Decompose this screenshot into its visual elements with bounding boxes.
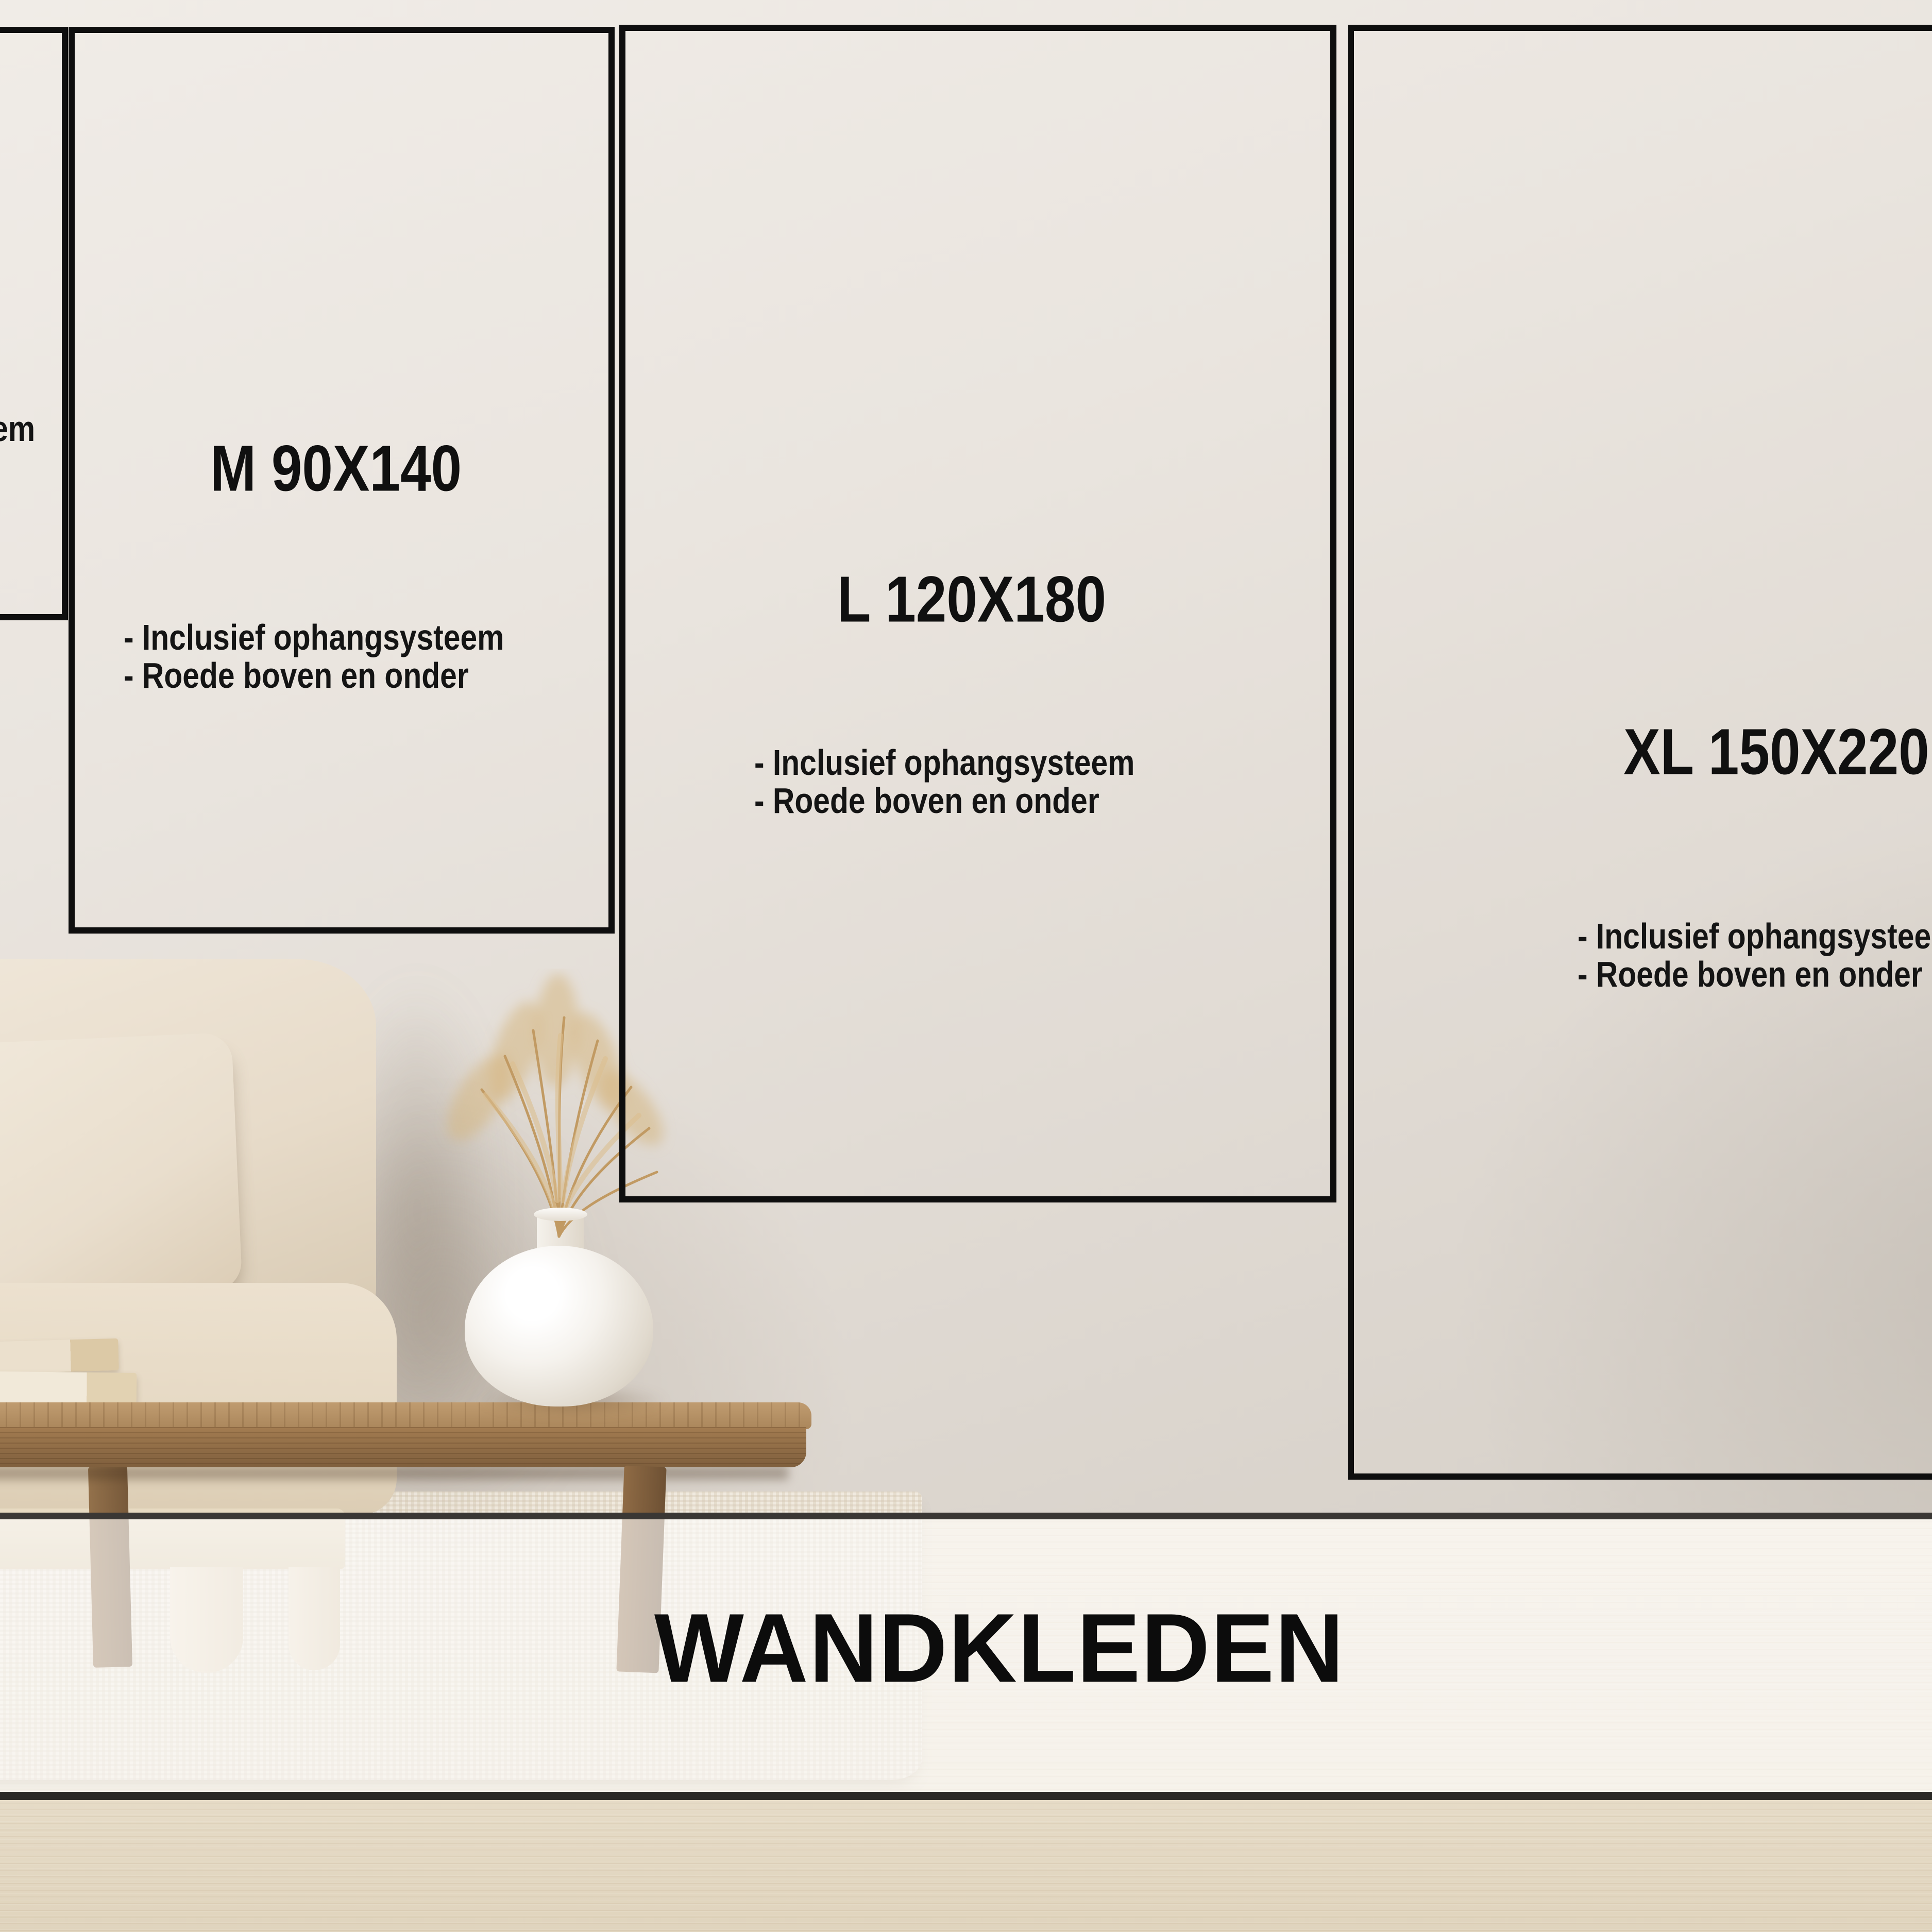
size-l-bullet-2: - Roede boven en onder: [754, 782, 1134, 820]
sofa-pillow: [0, 1032, 243, 1302]
book: [0, 1338, 119, 1375]
size-s-bullet-fragment: em: [0, 408, 35, 449]
banner-title: WANDKLEDEN: [654, 1592, 1345, 1704]
table-shadow: [0, 1466, 788, 1480]
size-xl-label: XL 150X220: [1623, 715, 1929, 789]
coffee-table-edge: [0, 1427, 806, 1467]
vase-lip: [534, 1208, 587, 1221]
size-m-bullet-1: - Inclusief ophangsysteem: [124, 618, 504, 656]
book: [0, 1371, 137, 1406]
banner-top-line: [0, 1513, 1932, 1519]
product-size-mockup: WANDKLEDEN em M 90X140 - Inclusief ophan…: [0, 0, 1932, 1932]
size-m-bullet-2: - Roede boven en onder: [124, 656, 504, 694]
white-vase: [465, 1246, 653, 1406]
size-l-bullets: - Inclusief ophangsysteem - Roede boven …: [754, 743, 1134, 820]
coffee-table-top: [0, 1402, 811, 1429]
size-xl-bullets: - Inclusief ophangsysteem - Roede boven …: [1578, 917, 1932, 993]
size-l-label: L 120X180: [837, 562, 1106, 637]
banner-bottom-line: [0, 1792, 1932, 1800]
size-rect-s: [0, 27, 68, 620]
size-l-bullet-1: - Inclusief ophangsysteem: [754, 743, 1134, 782]
size-xl-bullet-2: - Roede boven en onder: [1578, 955, 1932, 993]
size-xl-bullet-1: - Inclusief ophangsysteem: [1578, 917, 1932, 955]
size-m-label: M 90X140: [210, 431, 462, 506]
size-m-bullets: - Inclusief ophangsysteem - Roede boven …: [124, 618, 504, 694]
